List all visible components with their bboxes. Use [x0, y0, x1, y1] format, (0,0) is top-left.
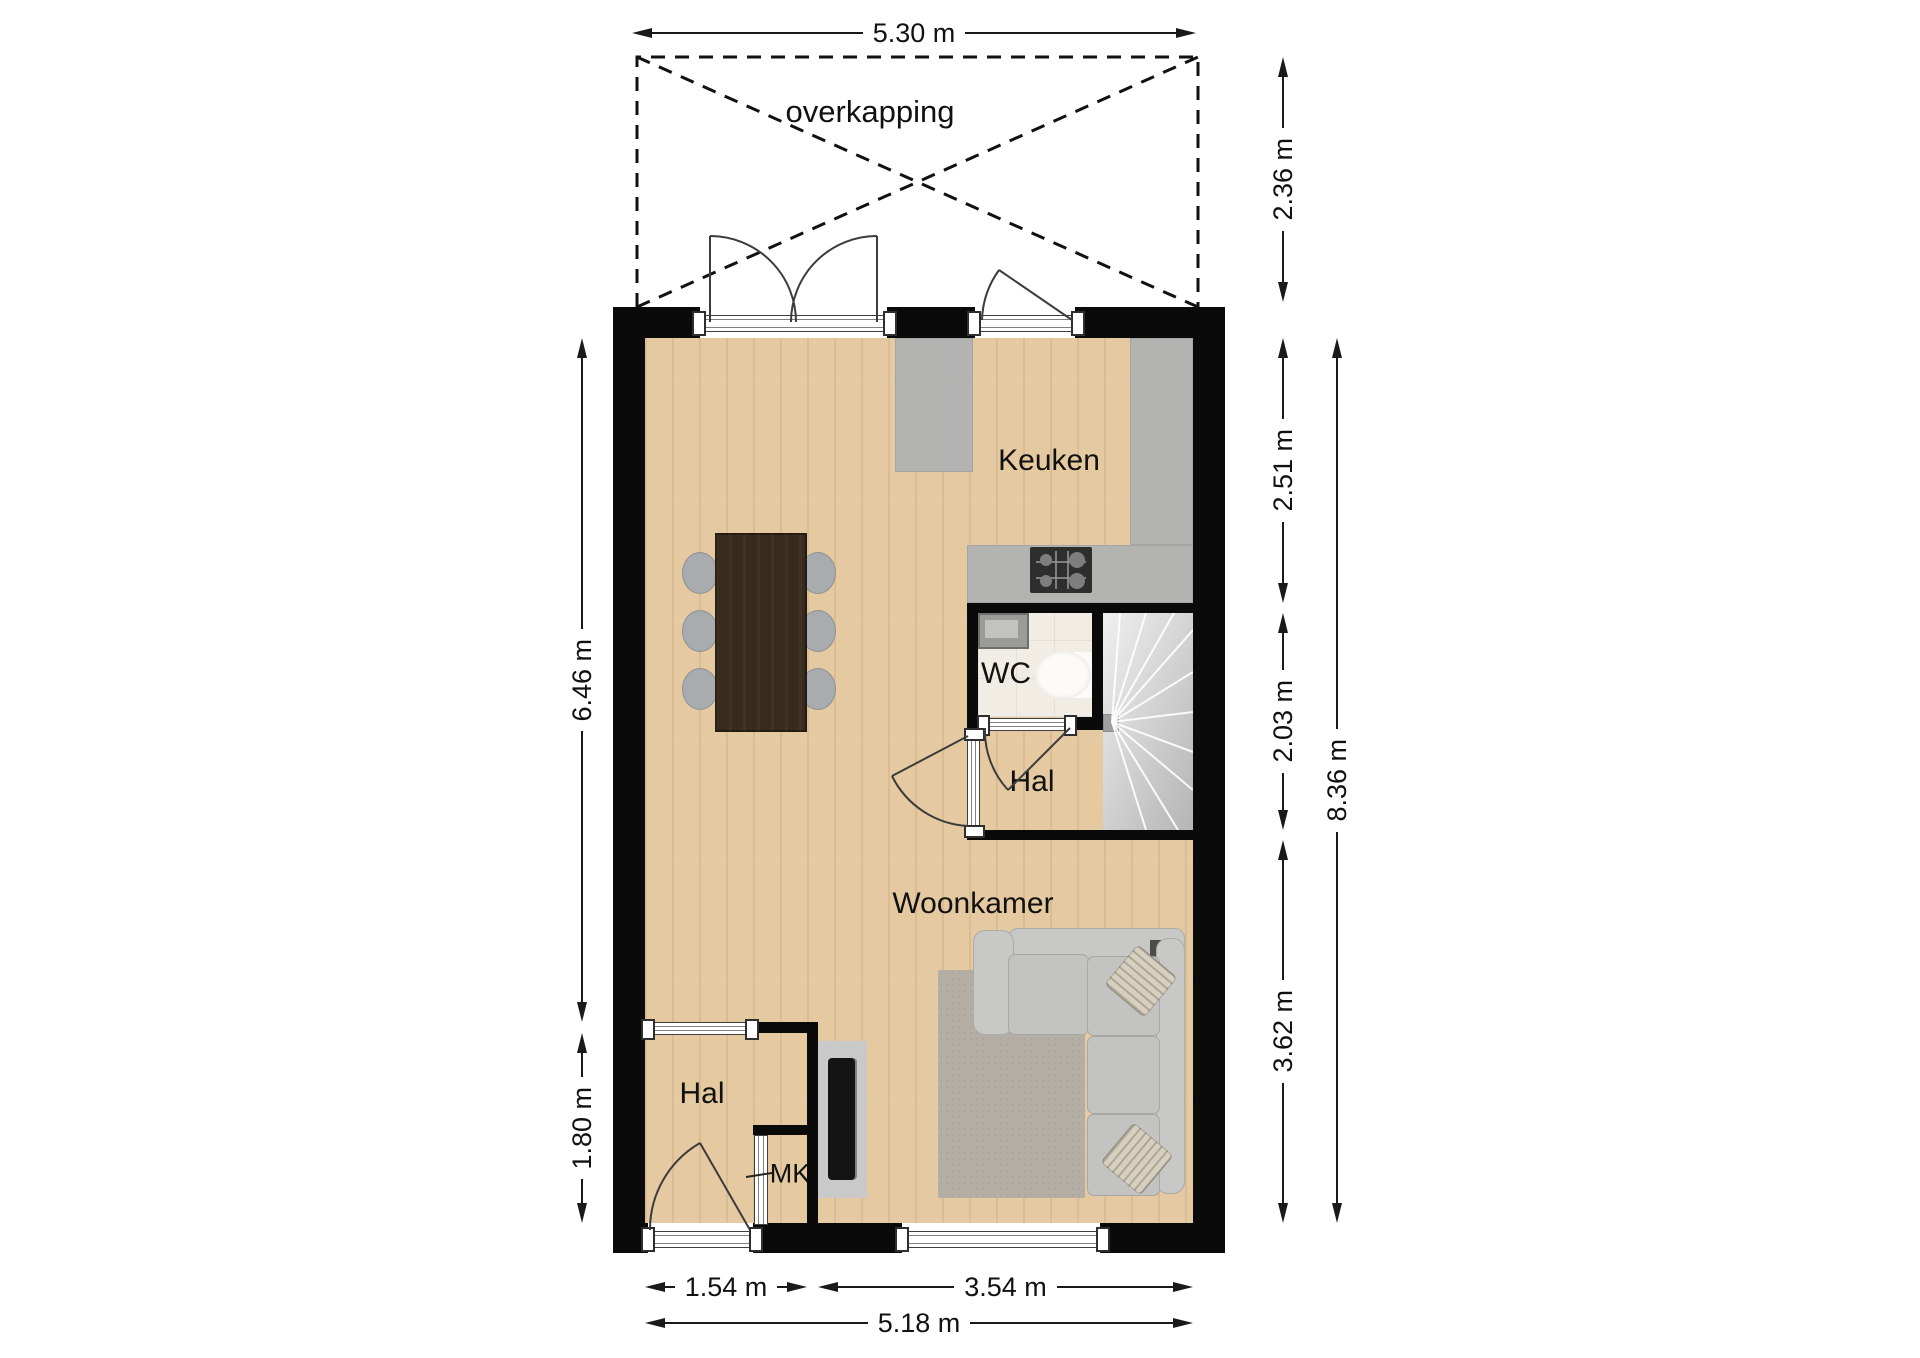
kitchen-counter-left [895, 338, 973, 472]
arrow-left-icon [818, 1282, 838, 1292]
frame-endblock [692, 311, 706, 336]
dim-line [665, 1322, 868, 1324]
label-hal-lower: Hal [679, 1077, 724, 1111]
mk-door-frame [754, 1135, 768, 1225]
frame-endblock [1096, 1227, 1110, 1252]
wc-sink-basin [985, 620, 1018, 638]
dim-line [1282, 773, 1284, 810]
dim-label: 3.62 m [1268, 980, 1299, 1083]
label-keuken: Keuken [998, 444, 1100, 478]
arrow-up-icon [577, 1033, 587, 1053]
arrow-down-icon [1278, 1203, 1288, 1223]
frame-endblock [967, 311, 981, 336]
kitchen-door-frame [975, 315, 1077, 332]
arrow-down-icon [577, 1002, 587, 1022]
dim-total-width: 5.18 m [645, 1306, 1193, 1340]
dim-line [1282, 860, 1284, 980]
wall-right [1193, 307, 1225, 1253]
label-hal-upper: Hal [1009, 765, 1054, 799]
frame-endblock [964, 825, 985, 838]
label-woonkamer: Woonkamer [892, 887, 1053, 921]
dining-table [715, 533, 807, 732]
dim-label: 1.80 m [567, 1077, 598, 1180]
dim-line [1057, 1286, 1173, 1288]
frame-endblock [641, 1019, 655, 1040]
dining-chair [682, 610, 718, 652]
wc-sink [978, 613, 1029, 649]
frame-endblock [1071, 311, 1085, 336]
toilet-bowl [1035, 651, 1091, 699]
dim-line [581, 1053, 583, 1077]
arrow-down-icon [1278, 810, 1288, 830]
dim-line [1282, 358, 1284, 419]
arrow-left-icon [632, 28, 652, 38]
arrow-down-icon [1278, 282, 1288, 302]
frame-endblock [641, 1227, 655, 1252]
wall-bottom-right [1100, 1223, 1225, 1253]
livingroom-window-frame [902, 1231, 1102, 1248]
hall-door-frame [967, 735, 980, 829]
frame-endblock [749, 1227, 763, 1252]
frame-endblock [1064, 715, 1077, 736]
floorplan-canvas: overkapping Keuken WC Hal Woonkamer Hal … [0, 0, 1920, 1358]
arrow-down-icon [1332, 1203, 1342, 1223]
label-overkapping: overkapping [786, 94, 955, 130]
arrow-up-icon [1332, 338, 1342, 358]
sofa-chaise-seat [1008, 954, 1089, 1035]
tv [828, 1058, 855, 1180]
dim-line [1336, 832, 1338, 1203]
dim-label: 8.36 m [1322, 729, 1353, 832]
dim-line [652, 32, 863, 34]
dim-hall-depth: 2.03 m [1266, 613, 1300, 830]
frame-endblock [745, 1019, 759, 1040]
wc-door-frame [983, 718, 1072, 731]
arrow-right-icon [1173, 1318, 1193, 1328]
dim-line [970, 1322, 1173, 1324]
dim-label: 2.36 m [1268, 128, 1299, 231]
dining-chair [682, 668, 718, 710]
dim-line [581, 358, 583, 629]
entrance-door-frame [648, 1231, 755, 1248]
stove [1030, 547, 1092, 593]
dim-label: 5.18 m [868, 1308, 971, 1339]
kitchen-counter-right [1130, 338, 1193, 545]
wall-mk-top [753, 1125, 818, 1135]
dim-line [581, 731, 583, 1002]
frame-endblock [964, 728, 985, 741]
arrow-right-icon [1176, 28, 1196, 38]
dim-overkapping-width: 5.30 m [632, 16, 1196, 50]
wall-top-middle [887, 307, 975, 338]
arrow-right-icon [1173, 1282, 1193, 1292]
dining-chair [682, 552, 718, 594]
dim-line [777, 1286, 787, 1288]
arrow-up-icon [1278, 57, 1288, 77]
newel-post [1103, 714, 1119, 732]
wall-wc-stairs [1092, 613, 1103, 726]
arrow-up-icon [577, 338, 587, 358]
dim-left-lower-depth: 1.80 m [565, 1033, 599, 1223]
dim-line [1282, 77, 1284, 128]
dim-kitchen-depth: 2.51 m [1266, 338, 1300, 603]
dim-overkapping-depth: 2.36 m [1266, 57, 1300, 302]
hall-interior-door-frame [647, 1022, 750, 1035]
wall-kitchen [967, 603, 1193, 613]
sofa-cushion [1087, 1036, 1160, 1114]
arrow-down-icon [577, 1203, 587, 1223]
dim-label: 3.54 m [954, 1272, 1057, 1303]
wall-left [613, 307, 645, 1253]
dim-line [965, 32, 1176, 34]
arrow-left-icon [645, 1318, 665, 1328]
arrow-up-icon [1278, 338, 1288, 358]
dim-livingroom-depth: 3.62 m [1266, 840, 1300, 1223]
label-mk: MK [770, 1159, 811, 1190]
label-wc: WC [981, 657, 1031, 691]
arrow-up-icon [1278, 613, 1288, 633]
dim-line [1282, 231, 1284, 282]
frame-endblock [883, 311, 897, 336]
dim-line [1282, 1083, 1284, 1203]
dim-line [581, 1179, 583, 1203]
dim-line [838, 1286, 954, 1288]
dim-line [1282, 522, 1284, 583]
arrow-left-icon [645, 1282, 665, 1292]
dim-line [665, 1286, 675, 1288]
dim-label: 5.30 m [863, 18, 966, 49]
dim-total-depth: 8.36 m [1320, 338, 1354, 1223]
dim-line [1336, 358, 1338, 729]
arrow-up-icon [1278, 840, 1288, 860]
dim-left-upper-depth: 6.46 m [565, 338, 599, 1022]
dim-label: 2.03 m [1268, 670, 1299, 773]
dim-hall-width: 1.54 m [645, 1270, 807, 1304]
wall-hall-bottom [967, 830, 1193, 840]
dim-label: 6.46 m [567, 629, 598, 732]
wall-bottom-middle [753, 1223, 902, 1253]
dim-label: 2.51 m [1268, 419, 1299, 522]
arrow-down-icon [1278, 583, 1288, 603]
dim-label: 1.54 m [675, 1272, 778, 1303]
arrow-right-icon [787, 1282, 807, 1292]
garden-doors-frame [700, 315, 889, 332]
dim-line [1282, 633, 1284, 670]
frame-endblock [895, 1227, 909, 1252]
wall-tv [807, 1022, 818, 1223]
dim-livingroom-width: 3.54 m [818, 1270, 1193, 1304]
